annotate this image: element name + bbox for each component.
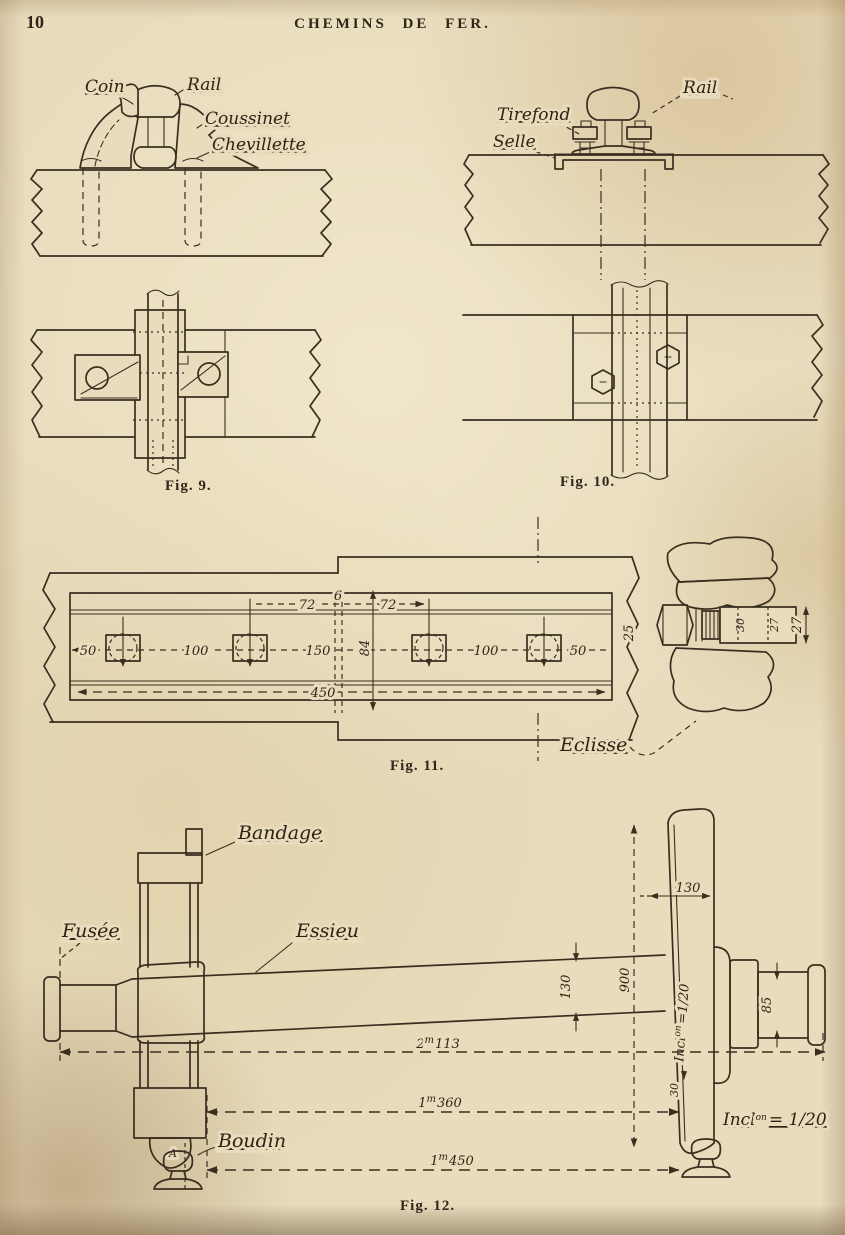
incline-rail-label: Inclon= 1/20: [722, 1110, 827, 1130]
bandage-label: Bandage: [237, 822, 322, 844]
dim-back-to-back: 1m360: [418, 1094, 462, 1111]
fig11-dimensions: 72 6 72 50 100 150 100 50 84 450 25: [72, 589, 637, 710]
fig9-section-drawing: Coin Rail Coussinet Chevillette: [25, 60, 345, 275]
dim-100-right: 100: [474, 644, 499, 659]
dim-25: 25: [622, 625, 637, 643]
fig10-plan-drawing: [455, 278, 840, 483]
dim-72-right: 72: [380, 598, 397, 613]
point-a-label: A: [168, 1147, 177, 1160]
axle: [132, 955, 665, 1037]
rail-ends-plan: [43, 557, 639, 740]
sleeper-section: [31, 170, 332, 256]
fig9-caption: Fig. 9.: [165, 478, 212, 495]
fusee-label: Fusée: [61, 920, 120, 942]
dim-wheel-diameter: 900: [618, 968, 633, 993]
sleeper-section: [464, 155, 829, 245]
fig11-drawing: 72 6 72 50 100 150 100 50 84 450 25: [20, 515, 835, 795]
fig12-dimensions: 130 900 130 85 Inclon=1/20 30 Inclon= 1/…: [60, 825, 827, 1180]
dim-450: 450: [310, 686, 336, 701]
coin-label: Coin: [85, 77, 125, 97]
dim-50-right: 50: [570, 644, 587, 659]
dim-27-end: 27: [790, 616, 805, 634]
dim-84: 84: [358, 640, 373, 657]
dim-150: 150: [306, 644, 331, 659]
rail-label: Rail: [186, 75, 221, 95]
selle-plate: [555, 154, 673, 169]
fig10-caption: Fig. 10.: [560, 474, 615, 491]
right-wheel-elevation: [668, 809, 825, 1153]
dim-axle-diameter: 130: [559, 975, 574, 1000]
dim-72-left: 72: [299, 598, 316, 613]
left-rail-profile: [154, 1151, 202, 1189]
fig12-drawing: A Bandage Fusée: [20, 795, 835, 1210]
dim-overall-length: 2m113: [415, 1035, 460, 1052]
dim-rim-width: 130: [676, 881, 701, 896]
left-wheel-section: A: [134, 829, 206, 1191]
dim-flange-gauge: 1m450: [430, 1152, 474, 1169]
running-header: CHEMINS DE FER.: [0, 16, 785, 33]
right-rail-profile: [682, 1139, 730, 1177]
selle-label: Selle: [493, 132, 536, 152]
fishplate-plan: [70, 593, 612, 700]
dim-100-left: 100: [184, 644, 209, 659]
eclisse-label: Eclisse: [559, 734, 627, 756]
chevillette-pins: [81, 159, 203, 247]
tirefond-label: Tirefond: [497, 105, 570, 125]
chevillette-label: Chevillette: [212, 135, 306, 155]
dim-27-plate: 27: [768, 618, 781, 633]
fig11-caption: Fig. 11.: [390, 758, 444, 775]
essieu-label: Essieu: [295, 920, 359, 942]
rail-label: Rail: [682, 78, 717, 98]
left-journal: [44, 977, 132, 1041]
scanned-book-page: 10 CHEMINS DE FER.: [0, 0, 845, 1235]
eclisse-section: 30 27 27 Eclisse: [559, 537, 806, 756]
dim-journal-diameter: 85: [760, 997, 775, 1014]
sleeper-plan: [463, 315, 823, 420]
dim-50-left: 50: [80, 644, 97, 659]
dim-30-plate: 30: [734, 618, 747, 632]
boudin-label: Boudin: [217, 1130, 286, 1152]
fig10-section-drawing: Tirefond Selle Rail: [455, 65, 840, 290]
dim-6: 6: [334, 589, 342, 604]
dim-flange-height: 30: [668, 1083, 681, 1097]
bolt-heads: [592, 345, 679, 394]
rail-plan: [611, 281, 668, 480]
fig9-plan-drawing: [25, 280, 340, 480]
fig12-caption: Fig. 12.: [400, 1198, 455, 1215]
coussinet-label: Coussinet: [205, 109, 290, 129]
